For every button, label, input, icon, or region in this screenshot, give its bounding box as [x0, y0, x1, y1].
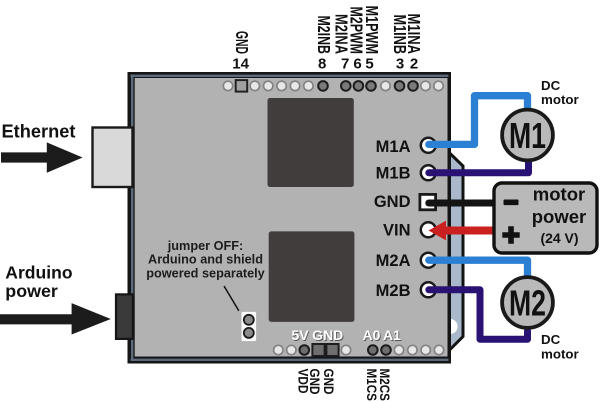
- svg-text:powered separately: powered separately: [146, 266, 264, 280]
- svg-text:14: 14: [232, 56, 249, 73]
- svg-text:VIN: VIN: [383, 221, 411, 239]
- svg-text:M1B: M1B: [376, 165, 411, 183]
- svg-text:3: 3: [396, 56, 404, 73]
- svg-text:jumper OFF:: jumper OFF:: [167, 239, 243, 253]
- svg-text:M1INA: M1INA: [404, 14, 424, 55]
- svg-text:motor: motor: [541, 92, 579, 107]
- svg-text:A0: A0: [363, 327, 381, 343]
- svg-text:(24 V): (24 V): [540, 230, 578, 246]
- svg-text:power: power: [532, 206, 586, 227]
- svg-text:GND: GND: [307, 369, 323, 395]
- svg-text:DC: DC: [541, 78, 561, 93]
- svg-text:5V: 5V: [291, 327, 309, 343]
- svg-text:M2B: M2B: [376, 282, 411, 300]
- svg-text:6: 6: [353, 56, 361, 73]
- svg-text:8: 8: [318, 56, 326, 73]
- svg-text:2: 2: [410, 56, 418, 73]
- svg-text:M2: M2: [509, 283, 546, 324]
- svg-text:power: power: [5, 281, 58, 301]
- svg-text:M2INB: M2INB: [314, 16, 334, 55]
- svg-text:M1A: M1A: [376, 138, 411, 156]
- svg-text:GND: GND: [321, 369, 337, 395]
- svg-text:Arduino: Arduino: [5, 263, 72, 283]
- svg-text:GND: GND: [374, 193, 411, 211]
- svg-text:5: 5: [365, 56, 373, 73]
- svg-text:M2CS: M2CS: [377, 369, 393, 402]
- svg-text:Ethernet: Ethernet: [2, 122, 76, 142]
- svg-text:7: 7: [341, 56, 349, 73]
- svg-text:M2A: M2A: [376, 252, 411, 270]
- svg-text:GND: GND: [312, 327, 343, 343]
- svg-text:motor: motor: [541, 347, 579, 362]
- svg-text:A1: A1: [383, 327, 401, 343]
- svg-text:GND: GND: [232, 31, 252, 54]
- svg-text:M1: M1: [509, 115, 546, 156]
- svg-text:Arduino and shield: Arduino and shield: [148, 253, 263, 267]
- svg-text:motor: motor: [533, 184, 585, 205]
- svg-text:DC: DC: [541, 332, 561, 347]
- svg-text:M1PWM: M1PWM: [362, 6, 382, 55]
